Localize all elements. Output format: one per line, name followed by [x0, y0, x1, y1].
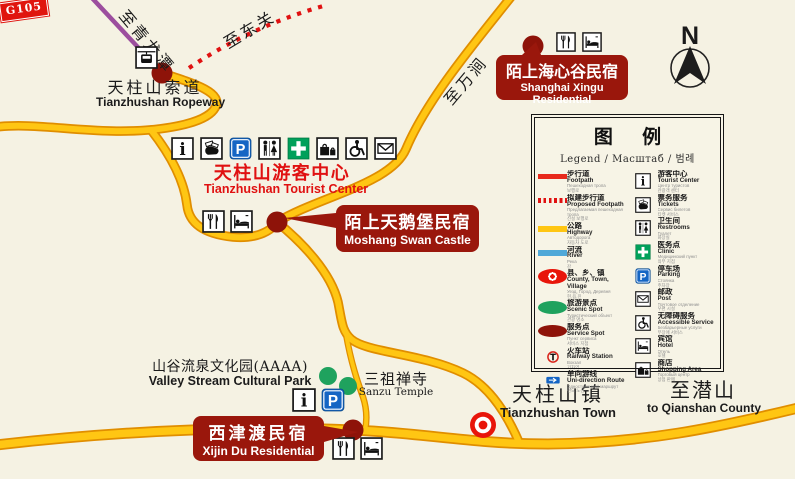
- label-tianzhushan-ropeway: 天柱山索道 Tianzhushan Ropeway: [96, 79, 214, 109]
- tourist-center-facility-strip: [171, 137, 397, 160]
- scenic-spot-dot-valley: [319, 367, 337, 385]
- compass-n-label: N: [681, 22, 699, 50]
- parking-icon: [229, 137, 252, 160]
- callout-shanghai-xingu: 陌上海心谷民宿 Shanghai Xingu Residential: [496, 55, 628, 100]
- parking-icon: [321, 388, 345, 412]
- label-en: Tianzhushan Town: [499, 406, 617, 420]
- label-en: Valley Stream Cultural Park: [139, 375, 321, 389]
- clinic-icon: [287, 137, 310, 160]
- compass: N: [671, 22, 709, 87]
- label-zh: 三祖禅寺: [355, 371, 437, 387]
- callout-en: Moshang Swan Castle: [342, 233, 473, 247]
- callout-zh: 陌上海心谷民宿: [502, 58, 622, 82]
- label-en: Tianzhushan Tourist Center: [204, 183, 360, 197]
- tianzhushan-tourist-map: i P: [0, 0, 795, 479]
- arrow-icon: [546, 373, 560, 387]
- shanghai-facility-strip: [556, 32, 602, 52]
- legend-box: 图 例 Legend / Масштаб / 범례 步行道 Footpath П…: [531, 114, 724, 372]
- callout-zh: 陌上天鹅堡民宿: [342, 208, 473, 233]
- hotel-icon: [360, 437, 383, 460]
- legend-item-kr: 상점 판매: [658, 378, 720, 383]
- mail-icon: [374, 137, 397, 160]
- tickets-icon: [200, 137, 223, 160]
- label-en: Tianzhushan Ropeway: [96, 96, 214, 109]
- restrooms-icon: [258, 137, 281, 160]
- restaurant-icon: [202, 210, 225, 233]
- ropeway-station-icon-strip: [135, 46, 158, 69]
- info-icon: [292, 388, 316, 412]
- info-icon: [171, 137, 194, 160]
- hotel-icon: [230, 210, 253, 233]
- cablecar-icon: [135, 46, 158, 69]
- callout-tail: [284, 213, 336, 228]
- label-zh: 天柱山索道: [96, 79, 214, 96]
- callout-zh: 西津渡民宿: [199, 419, 318, 444]
- callout-xijin-du: 西津渡民宿 Xijin Du Residential: [193, 416, 324, 461]
- callout-tail: [522, 42, 541, 55]
- restaurant-icon: [556, 32, 576, 52]
- legend-sample: [538, 370, 567, 387]
- callout-en: Xijin Du Residential: [199, 444, 318, 458]
- label-sanzu-temple: 三祖禅寺 Sanzu Temple: [355, 371, 437, 399]
- legend-inner-border: [534, 117, 721, 369]
- legend-item: 单向游线 Uni-direction Route Односторонний м…: [538, 370, 629, 394]
- valley-facility-strip: [292, 388, 345, 412]
- county-marker: [470, 412, 496, 438]
- label-zh: 山谷流泉文化园(AAAA): [139, 360, 321, 375]
- moshang-facility-strip: [202, 210, 253, 233]
- label-en: to Qianshan County: [647, 402, 759, 415]
- shopping-icon: [316, 137, 339, 160]
- label-valley-stream-park: 山谷流泉文化园(AAAA) Valley Stream Cultural Par…: [139, 360, 321, 389]
- label-en: Sanzu Temple: [355, 387, 437, 398]
- callout-moshang-swan-castle: 陌上天鹅堡民宿 Moshang Swan Castle: [336, 205, 479, 252]
- callout-tail: [324, 426, 358, 442]
- label-tourist-center: 天柱山游客中心 Tianzhushan Tourist Center: [204, 164, 360, 197]
- label-zh: 天柱山游客中心: [204, 164, 360, 183]
- hotel-icon: [582, 32, 602, 52]
- callout-en: Shanghai Xingu Residential: [502, 82, 622, 106]
- legend-item-kr: 편도 노선: [567, 389, 629, 394]
- wheelchair-icon: [345, 137, 368, 160]
